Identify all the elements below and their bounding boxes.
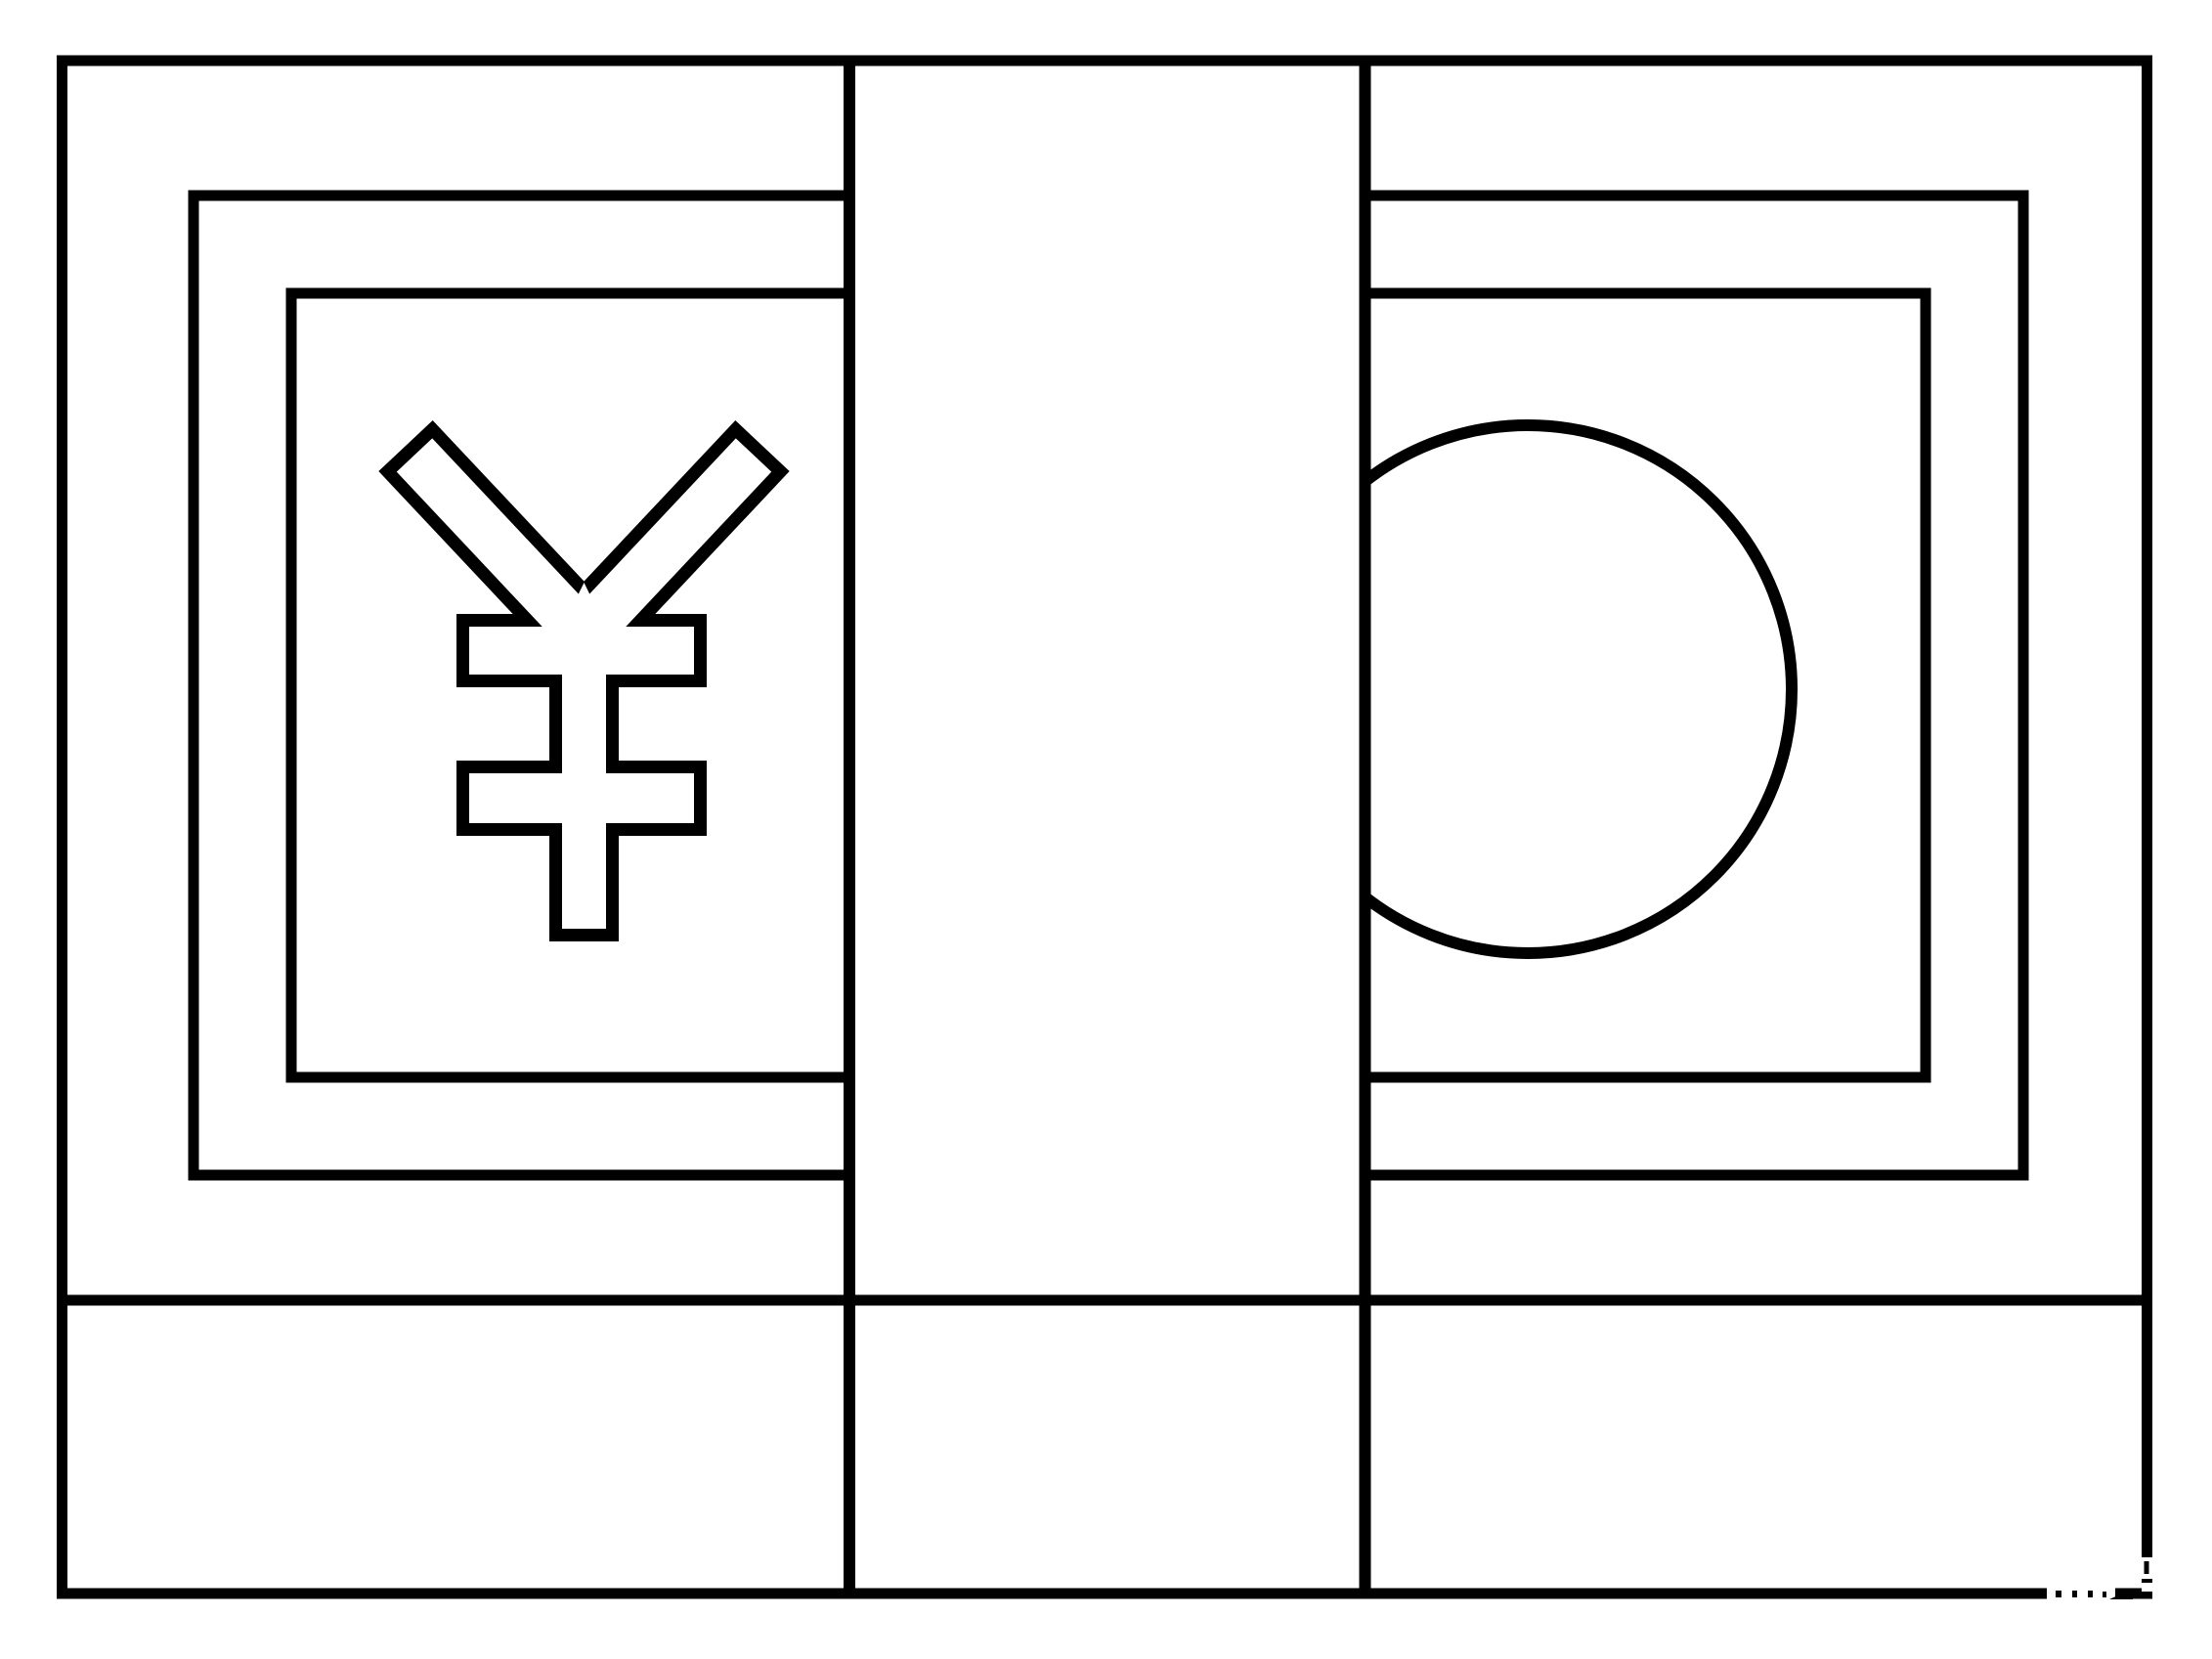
artwork-canvas: [0, 0, 2212, 1659]
watermark-speck-4: [2103, 1592, 2106, 1597]
watermark-speck-1: [2056, 1591, 2061, 1597]
watermark-speck-3: [2088, 1591, 2093, 1597]
watermark-speck-5: [2145, 1561, 2149, 1574]
watermark-speck-2: [2072, 1591, 2077, 1597]
watermark-notch-right-2: [2142, 1583, 2152, 1592]
yen-banknote-line-art: [0, 0, 2212, 1659]
band-fill: [844, 55, 1370, 1599]
coloring-page: [0, 0, 2212, 1659]
